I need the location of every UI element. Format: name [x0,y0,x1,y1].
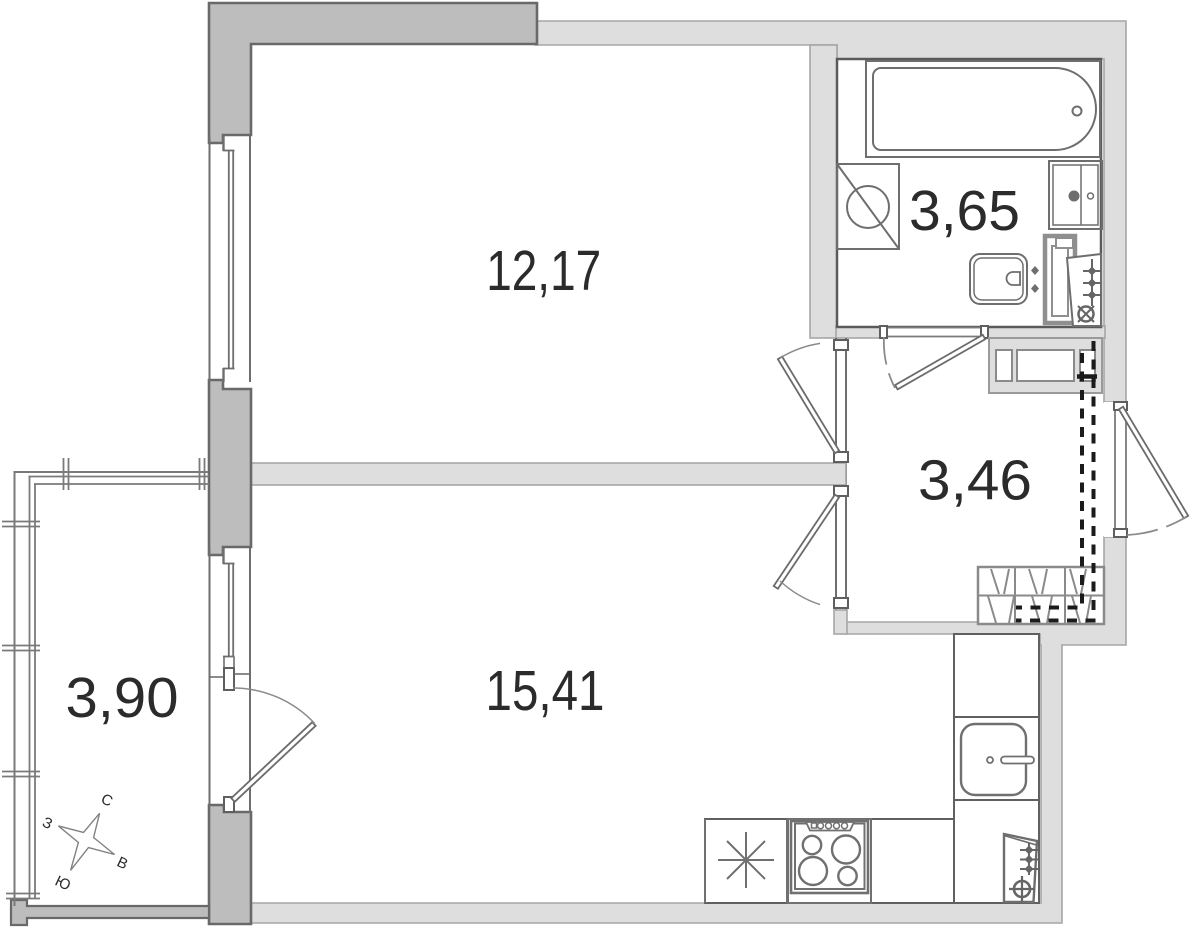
svg-text:3,65: 3,65 [909,179,1020,243]
svg-text:3,46: 3,46 [918,449,1032,513]
svg-text:15,41: 15,41 [486,659,605,723]
svg-text:12,17: 12,17 [486,239,601,303]
svg-text:3,90: 3,90 [66,666,179,730]
